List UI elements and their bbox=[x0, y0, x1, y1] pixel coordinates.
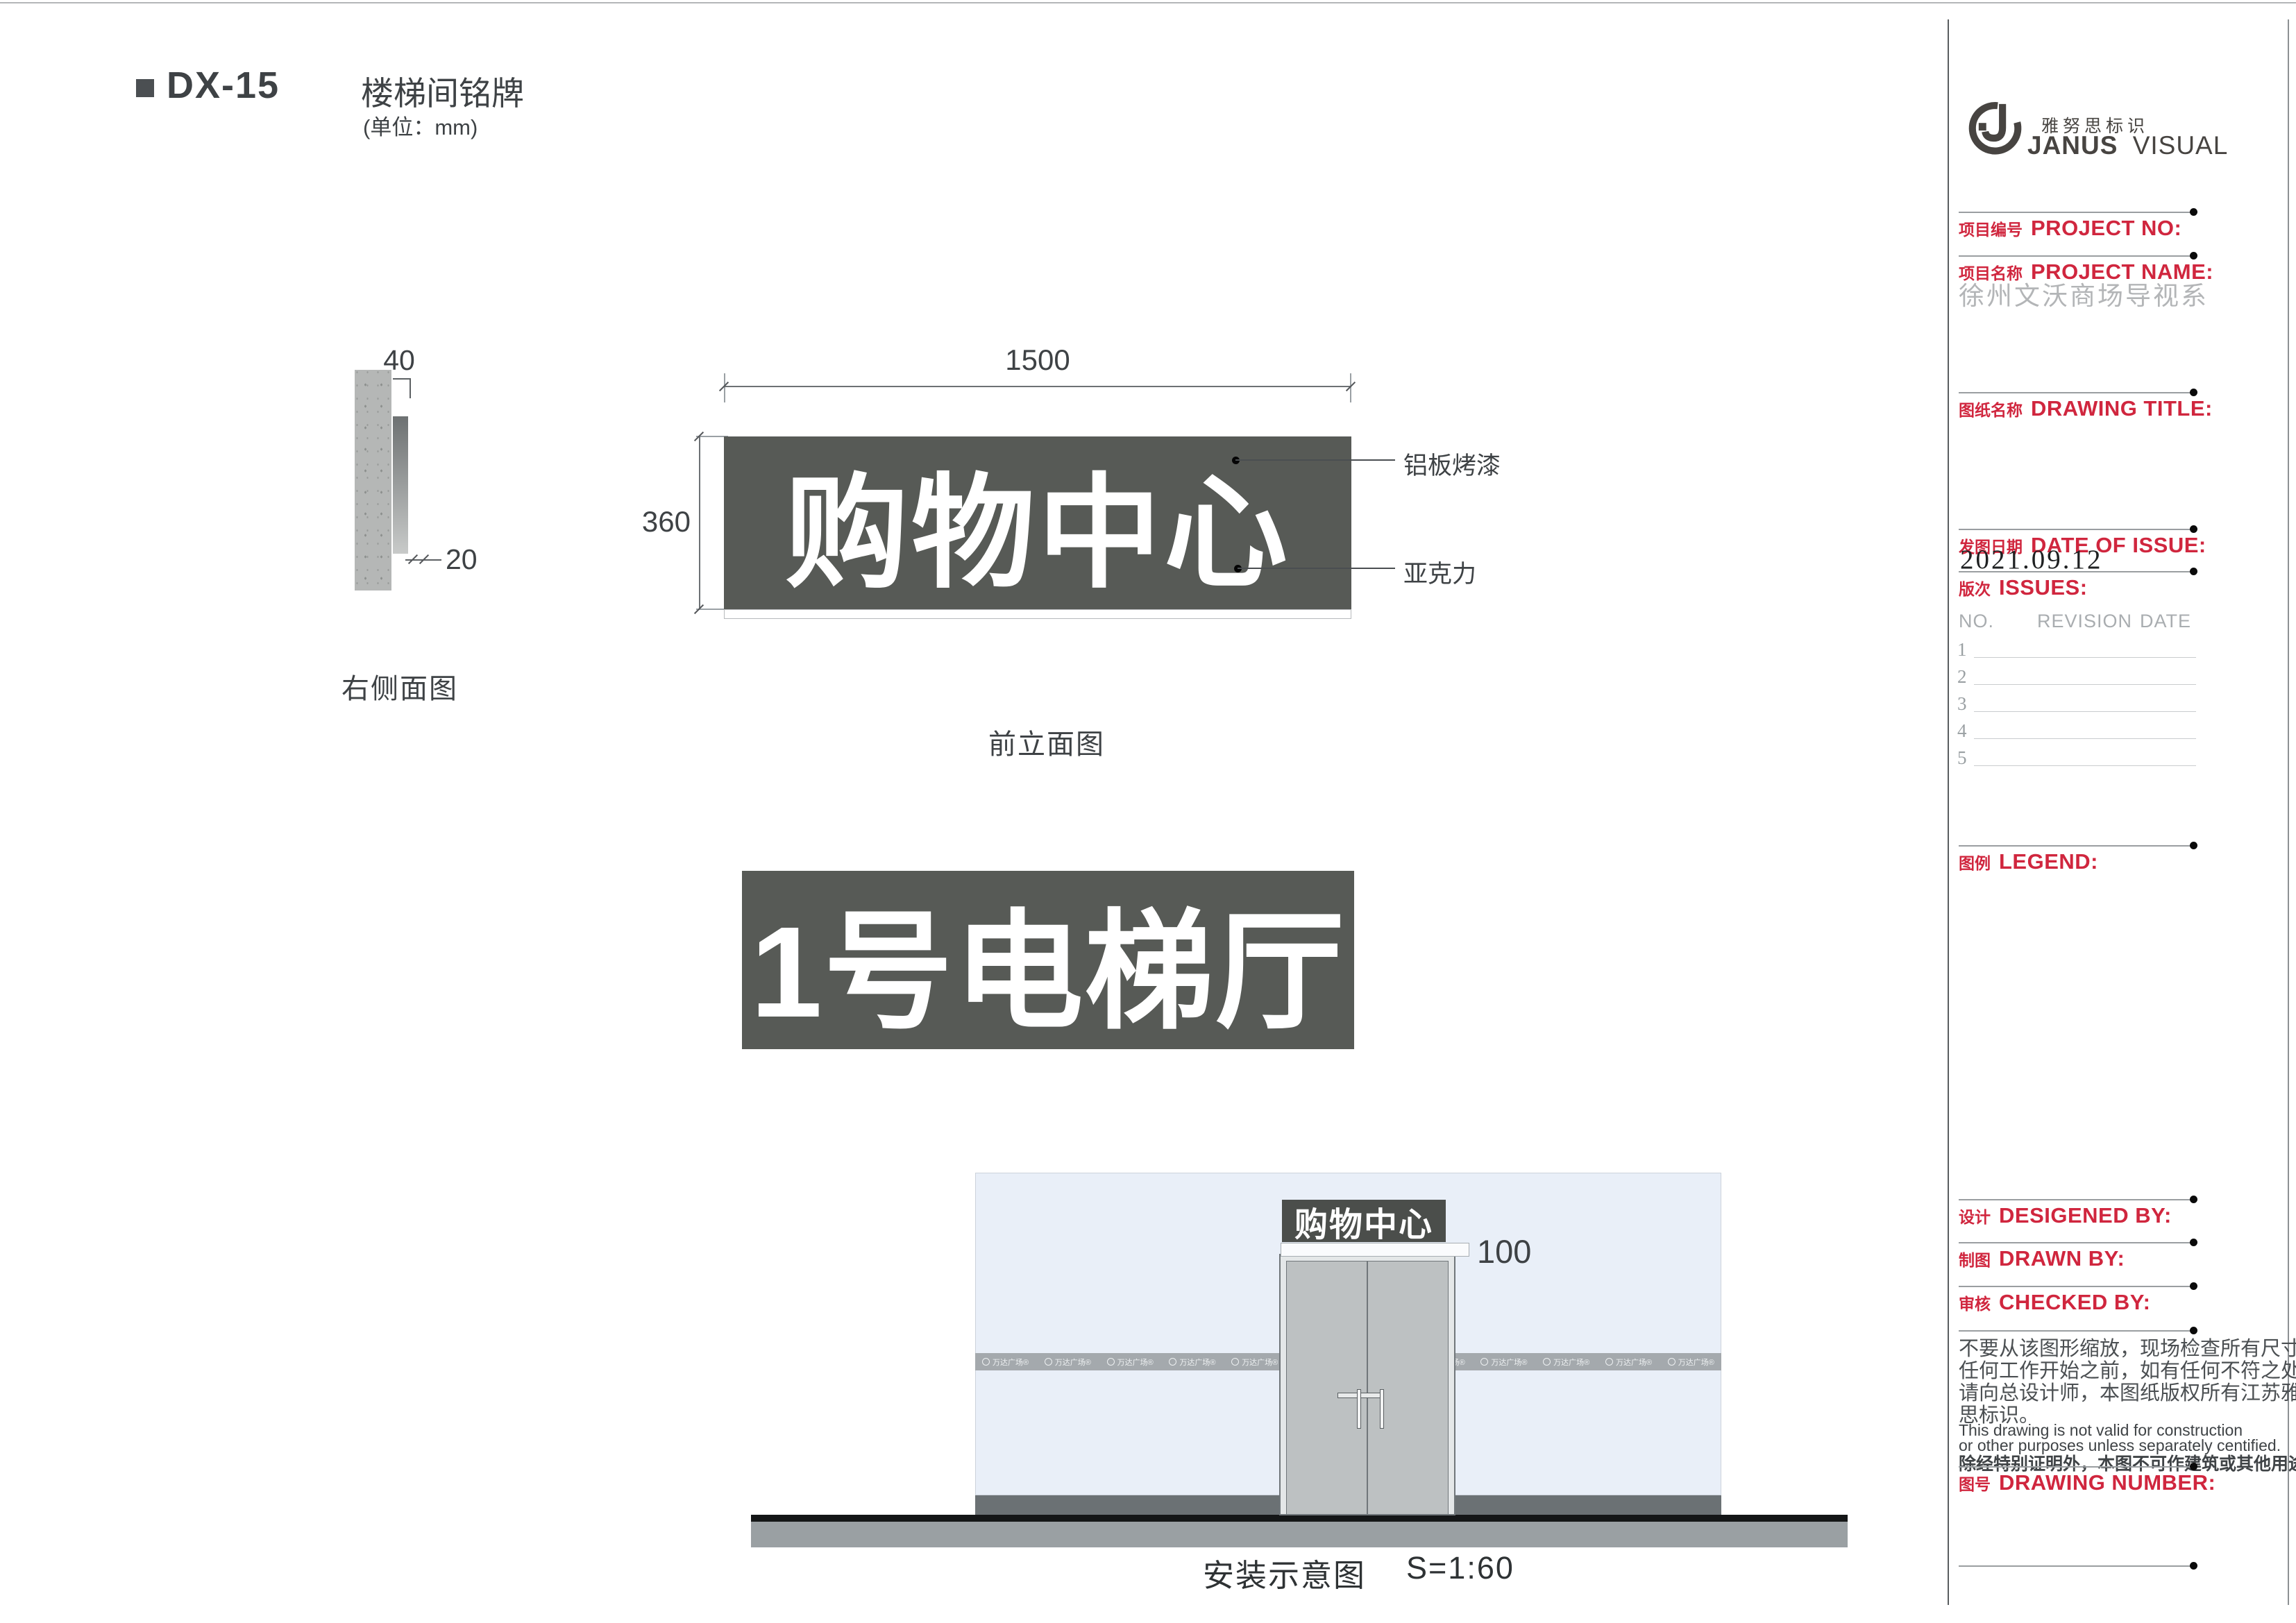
field-rule bbox=[1959, 1565, 2195, 1567]
field-rule bbox=[1959, 1199, 2195, 1200]
issues-header-date: DATE bbox=[2140, 611, 2191, 632]
extension-line bbox=[724, 373, 725, 402]
install-caption-text: 安装示意图 bbox=[1203, 1550, 1366, 1595]
door-handle-plate bbox=[1380, 1389, 1384, 1429]
brand-ring-icon bbox=[1169, 1358, 1176, 1366]
issue-number: 3 bbox=[1957, 693, 1967, 715]
titleblock-divider-left bbox=[1948, 19, 1949, 1605]
field-label-en: LEGEND: bbox=[1999, 849, 2098, 874]
wall-band-logo: 万达广场® bbox=[1169, 1357, 1215, 1368]
install-sign: 购物中心 bbox=[1282, 1200, 1446, 1242]
field-label-cn: 图纸名称 bbox=[1959, 397, 2023, 420]
disclaimer-line: 请向总设计师，本图纸版权所有江苏雅努 bbox=[1959, 1382, 2209, 1404]
wall-band-logo-text: 万达广场® bbox=[1678, 1357, 1714, 1368]
field-rule bbox=[1959, 845, 2195, 847]
field-label-en: DRAWING NUMBER: bbox=[1999, 1470, 2215, 1495]
dim40-bracket-vertical bbox=[410, 378, 411, 398]
brand-ring-icon bbox=[1543, 1358, 1551, 1366]
issue-number: 5 bbox=[1957, 747, 1967, 769]
leader-line bbox=[1238, 568, 1395, 569]
brand-ring-icon bbox=[1480, 1358, 1488, 1366]
brand-ring-icon bbox=[982, 1358, 990, 1366]
field-label-cn: 项目编号 bbox=[1959, 216, 2023, 240]
callout-acrylic: 亚克力 bbox=[1403, 554, 1476, 590]
issue-row: 2 bbox=[1957, 667, 2196, 688]
side-view-standoff-gap bbox=[391, 554, 410, 563]
field-rule bbox=[1959, 392, 2195, 393]
acrylic-strip bbox=[724, 609, 1351, 619]
install-ground-line bbox=[751, 1515, 1848, 1522]
item-code: DX-15 bbox=[167, 64, 280, 107]
brand-en-bold: JANUS bbox=[2027, 131, 2118, 160]
field-label-en: ISSUES: bbox=[1999, 575, 2088, 600]
side-view-sign-panel bbox=[393, 416, 408, 554]
dimension-line-height bbox=[699, 436, 700, 609]
field-label-cn: 图例 bbox=[1959, 850, 1991, 874]
field-label-cn: 审核 bbox=[1959, 1291, 1991, 1314]
sign-text: 购物中心 bbox=[1294, 1197, 1433, 1246]
wall-band-logo: 万达广场® bbox=[1045, 1357, 1091, 1368]
field-rule bbox=[1959, 571, 2195, 572]
dim40-bracket-horizontal bbox=[393, 378, 411, 380]
issues-header-revision: REVISION bbox=[2037, 611, 2132, 632]
field-drawing-number: 图号 DRAWING NUMBER: bbox=[1959, 1470, 2215, 1495]
brand-ring-icon bbox=[1045, 1358, 1052, 1366]
dimension-1500: 1500 bbox=[724, 343, 1351, 377]
field-label-cn: 设计 bbox=[1959, 1204, 1991, 1227]
field-issues: 版次 ISSUES: bbox=[1959, 575, 2088, 600]
issue-line bbox=[1974, 738, 2196, 740]
wall-band-logo-text: 万达广场® bbox=[1553, 1357, 1589, 1368]
field-label-en: DESIGENED BY: bbox=[1999, 1203, 2172, 1228]
field-checked-by: 审核 CHECKED BY: bbox=[1959, 1290, 2151, 1315]
field-rule bbox=[1959, 1286, 2195, 1287]
field-rule bbox=[1959, 1330, 2195, 1332]
dimension-360: 360 bbox=[625, 505, 691, 538]
issue-number: 4 bbox=[1957, 720, 1967, 742]
wall-band-logo: 万达广场® bbox=[1605, 1357, 1652, 1368]
install-scale: S=1:60 bbox=[1406, 1550, 1514, 1595]
brand-ring-icon bbox=[1231, 1358, 1239, 1366]
wall-band-logo-text: 万达广场® bbox=[1179, 1357, 1215, 1368]
front-view-label: 前立面图 bbox=[988, 722, 1105, 762]
door-handle-icon bbox=[1360, 1393, 1381, 1398]
door-leaf-right bbox=[1367, 1261, 1449, 1515]
field-label-cn: 版次 bbox=[1959, 576, 1991, 600]
field-drawn-by: 制图 DRAWN BY: bbox=[1959, 1246, 2125, 1271]
section-bullet bbox=[136, 79, 154, 97]
sheet-top-border bbox=[0, 2, 2296, 3]
issue-row: 4 bbox=[1957, 721, 2196, 742]
janus-logo-icon bbox=[1968, 101, 2023, 155]
field-rule bbox=[1959, 1242, 2195, 1243]
sign-text: 购物中心 bbox=[785, 434, 1290, 612]
field-label-cn: 制图 bbox=[1959, 1247, 1991, 1271]
brand-ring-icon bbox=[1605, 1358, 1613, 1366]
wall-band-logo-text: 万达广场® bbox=[1491, 1357, 1527, 1368]
wall-band-logo: 万达广场® bbox=[982, 1357, 1029, 1368]
field-label-en: CHECKED BY: bbox=[1999, 1290, 2151, 1315]
elevator-hall-sign: 1号电梯厅 bbox=[742, 871, 1354, 1049]
field-label-en: DRAWN BY: bbox=[1999, 1246, 2125, 1271]
side-view-wall bbox=[355, 370, 391, 590]
issue-row: 3 bbox=[1957, 694, 2196, 715]
issue-line bbox=[1974, 711, 2196, 713]
field-project-no: 项目编号 PROJECT NO: bbox=[1959, 216, 2181, 241]
callout-aluminum: 铝板烤漆 bbox=[1403, 446, 1501, 482]
field-drawing-title: 图纸名称 DRAWING TITLE: bbox=[1959, 396, 2213, 421]
field-label-en: PROJECT NO: bbox=[2031, 216, 2181, 241]
brand-name-en: JANUS VISUAL bbox=[2027, 131, 2228, 160]
wall-band-logo: 万达广场® bbox=[1231, 1357, 1278, 1368]
field-rule bbox=[1959, 212, 2195, 213]
field-label-en: DRAWING TITLE: bbox=[2031, 396, 2213, 421]
field-rule bbox=[1959, 1466, 2195, 1468]
issue-line bbox=[1974, 657, 2196, 658]
field-rule bbox=[1959, 529, 2195, 530]
brand-ring-icon bbox=[1668, 1358, 1675, 1366]
issue-number: 1 bbox=[1957, 639, 1967, 661]
wall-band-logo: 万达广场® bbox=[1480, 1357, 1527, 1368]
field-designed-by: 设计 DESIGENED BY: bbox=[1959, 1203, 2172, 1228]
wall-band-logo: 万达广场® bbox=[1543, 1357, 1589, 1368]
sign-text: 1号电梯厅 bbox=[750, 867, 1345, 1054]
unit-note: (单位：mm) bbox=[363, 110, 478, 141]
wall-band-logo-text: 万达广场® bbox=[1616, 1357, 1652, 1368]
issue-row: 1 bbox=[1957, 640, 2196, 661]
install-caption: 安装示意图 S=1:60 bbox=[1203, 1550, 1514, 1595]
brand-ring-icon bbox=[1107, 1358, 1115, 1366]
leader-line bbox=[1235, 459, 1395, 461]
issue-row: 5 bbox=[1957, 748, 2196, 769]
dimension-100: 100 bbox=[1477, 1232, 1531, 1271]
disclaimer-line: 任何工作开始之前，如有任何不符之处， bbox=[1959, 1360, 2209, 1382]
door-handle-icon bbox=[1337, 1393, 1358, 1398]
install-ground-slab bbox=[751, 1522, 1848, 1547]
field-legend: 图例 LEGEND: bbox=[1959, 849, 2098, 874]
disclaimer-line: 不要从该图形缩放，现场检查所有尺寸在 bbox=[1959, 1338, 2209, 1360]
wall-band-logo-text: 万达广场® bbox=[993, 1357, 1029, 1368]
page-title: 楼梯间铭牌 bbox=[361, 67, 524, 114]
drawing-sheet: DX-15 楼梯间铭牌 (单位：mm) 40 20 右侧面图 1500 360 … bbox=[0, 0, 2296, 1623]
dimension-line-width bbox=[724, 386, 1351, 387]
issues-header-no: NO. bbox=[1959, 611, 1994, 632]
wall-band-logo-text: 万达广场® bbox=[1055, 1357, 1091, 1368]
brand-en-light: VISUAL bbox=[2133, 131, 2229, 160]
wall-band-logo-text: 万达广场® bbox=[1242, 1357, 1278, 1368]
wall-band-logo-text: 万达广场® bbox=[1117, 1357, 1154, 1368]
issue-line bbox=[1974, 684, 2196, 686]
front-elevation-sign: 购物中心 bbox=[724, 436, 1351, 609]
dimension-20: 20 bbox=[446, 543, 478, 576]
wall-band-logo: 万达广场® bbox=[1668, 1357, 1714, 1368]
dimension-40: 40 bbox=[375, 344, 423, 377]
issue-number: 2 bbox=[1957, 666, 1967, 688]
side-view-label: 右侧面图 bbox=[341, 666, 458, 706]
field-label-cn: 图号 bbox=[1959, 1471, 1991, 1495]
project-name-value: 徐州文沃商场导视系 bbox=[1959, 275, 2209, 312]
issue-line bbox=[1974, 765, 2196, 767]
field-rule bbox=[1959, 255, 2195, 257]
wall-band-logo: 万达广场® bbox=[1107, 1357, 1154, 1368]
door-leaf-left bbox=[1286, 1261, 1367, 1515]
